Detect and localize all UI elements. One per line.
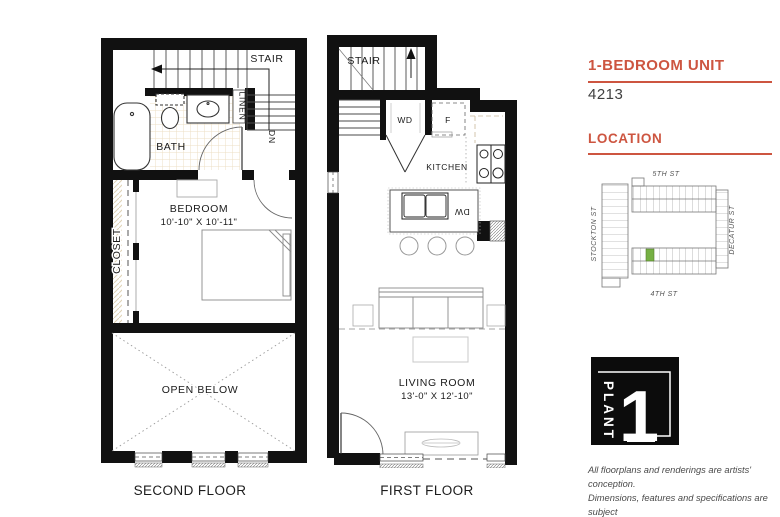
location-map: 5TH ST 4TH ST STOCKTON ST DECATUR ST xyxy=(588,164,772,300)
unit-type-title: 1-BEDROOM UNIT xyxy=(588,57,772,83)
entry-door-swing xyxy=(341,413,383,455)
sink-faucet xyxy=(207,103,209,105)
bottom-windows xyxy=(380,454,505,468)
highlighted-unit xyxy=(646,249,654,261)
floorplan-sheet: STAIR DN LINEN BATH BEDROOM 10'-10" X 10… xyxy=(0,0,780,517)
first-floor-caption: FIRST FLOOR xyxy=(337,483,517,498)
entry-step-notch xyxy=(327,458,334,465)
stair-label: STAIR xyxy=(250,53,283,65)
location-title: LOCATION xyxy=(588,131,772,155)
street-right-label: DECATUR ST xyxy=(729,205,736,254)
right-wall-feature xyxy=(490,221,505,241)
tub-drain xyxy=(130,112,133,115)
disclaimer: All floorplans and renderings are artist… xyxy=(588,463,780,517)
stove xyxy=(477,145,505,183)
unit-number: 4213 xyxy=(588,86,623,103)
side-table-left xyxy=(353,305,373,326)
second-floor-plan: STAIR DN LINEN BATH BEDROOM 10'-10" X 10… xyxy=(99,33,309,468)
bedroom-door-swing xyxy=(254,180,292,218)
sofa xyxy=(379,288,483,328)
street-left-label: STOCKTON ST xyxy=(591,206,598,261)
map-buildings xyxy=(602,178,728,287)
wd-closet: WD xyxy=(386,103,425,172)
bar-stools xyxy=(400,237,474,255)
closet-label: CLOSET xyxy=(111,228,123,274)
street-bottom-label: 4TH ST xyxy=(650,291,677,298)
second-floor-caption: SECOND FLOOR xyxy=(100,483,280,498)
logo-number: 1 xyxy=(619,377,659,445)
disclaimer-line: Dimensions, features and specifications … xyxy=(588,491,780,517)
stair-arrow-head xyxy=(407,48,416,59)
toilet-tank xyxy=(156,94,184,105)
fridge-label: F xyxy=(445,115,451,125)
street-top-label: 5TH ST xyxy=(652,171,679,178)
linen-label: LINEN xyxy=(238,91,248,120)
bedroom-dims: 10'-10" X 10'-11" xyxy=(161,217,238,228)
bath-label: BATH xyxy=(156,141,186,153)
stair-arrow-head xyxy=(151,65,162,74)
wd-label: WD xyxy=(397,115,412,125)
left-window xyxy=(328,172,338,193)
counter-edge xyxy=(470,116,503,143)
bottom-windows xyxy=(135,453,268,467)
open-below-label: OPEN BELOW xyxy=(162,384,239,396)
dn-label: DN xyxy=(267,130,277,144)
bedroom-label: BEDROOM xyxy=(170,203,228,215)
kitchen-island: DW xyxy=(388,188,480,234)
shelf xyxy=(432,132,452,137)
coffee-table xyxy=(413,337,468,362)
plant-logo: PLANT 1 xyxy=(591,357,679,445)
first-floor-plan: STAIR WD F KITCHEN DW xyxy=(325,33,525,468)
dresser xyxy=(177,180,217,197)
plant-logo-graphic: PLANT 1 xyxy=(591,357,679,445)
side-table-right xyxy=(487,305,505,326)
bed xyxy=(202,230,291,300)
stair-label: STAIR xyxy=(347,55,380,67)
toilet-bowl xyxy=(162,108,179,129)
living-room-dims: 13'-0" X 12'-10" xyxy=(401,391,473,402)
dw-label: DW xyxy=(454,207,469,217)
disclaimer-line: All floorplans and renderings are artist… xyxy=(588,463,780,491)
kitchen-label: KITCHEN xyxy=(426,162,468,172)
logo-brand-text: PLANT xyxy=(601,381,616,441)
logo-number-base xyxy=(627,435,655,442)
living-room-label: LIVING ROOM xyxy=(399,377,476,389)
media-console xyxy=(405,432,478,455)
